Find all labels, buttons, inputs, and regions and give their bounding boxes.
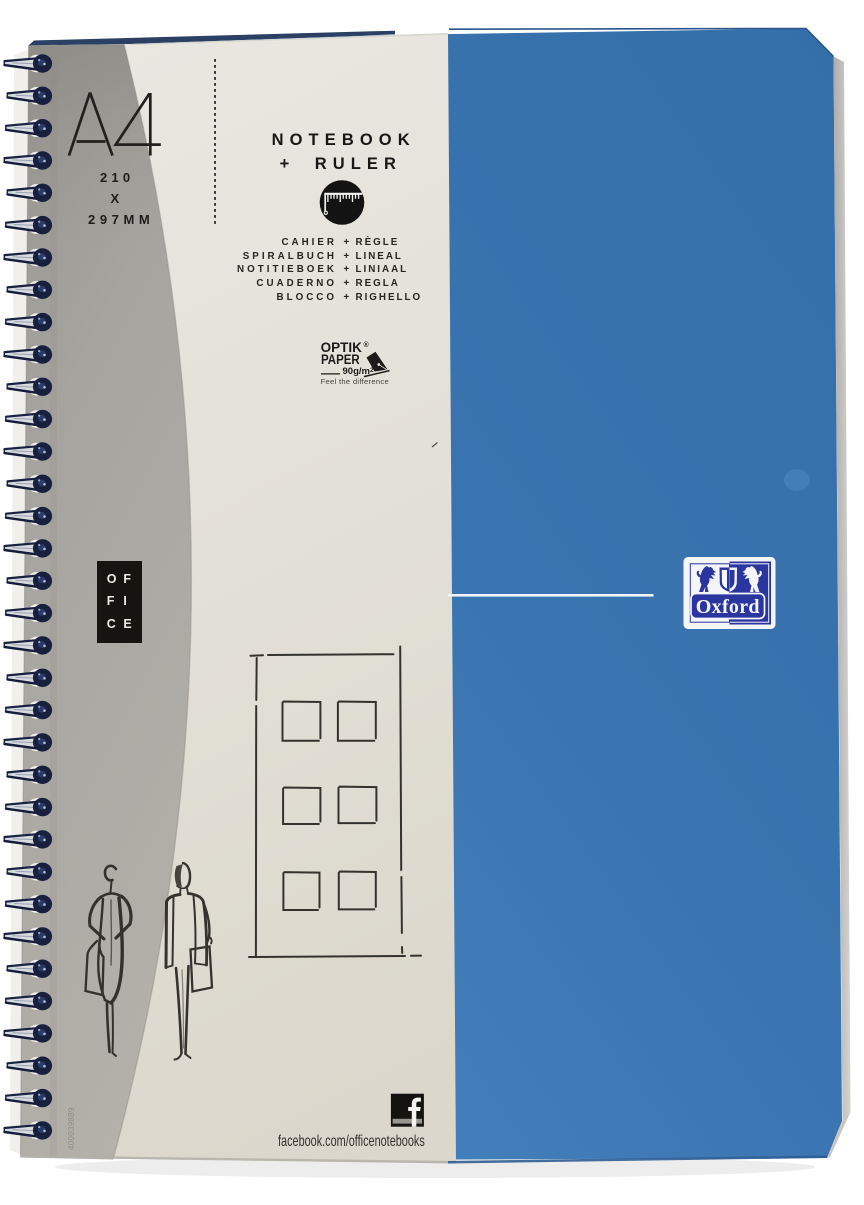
svg-text:Oxford: Oxford: [696, 596, 760, 618]
